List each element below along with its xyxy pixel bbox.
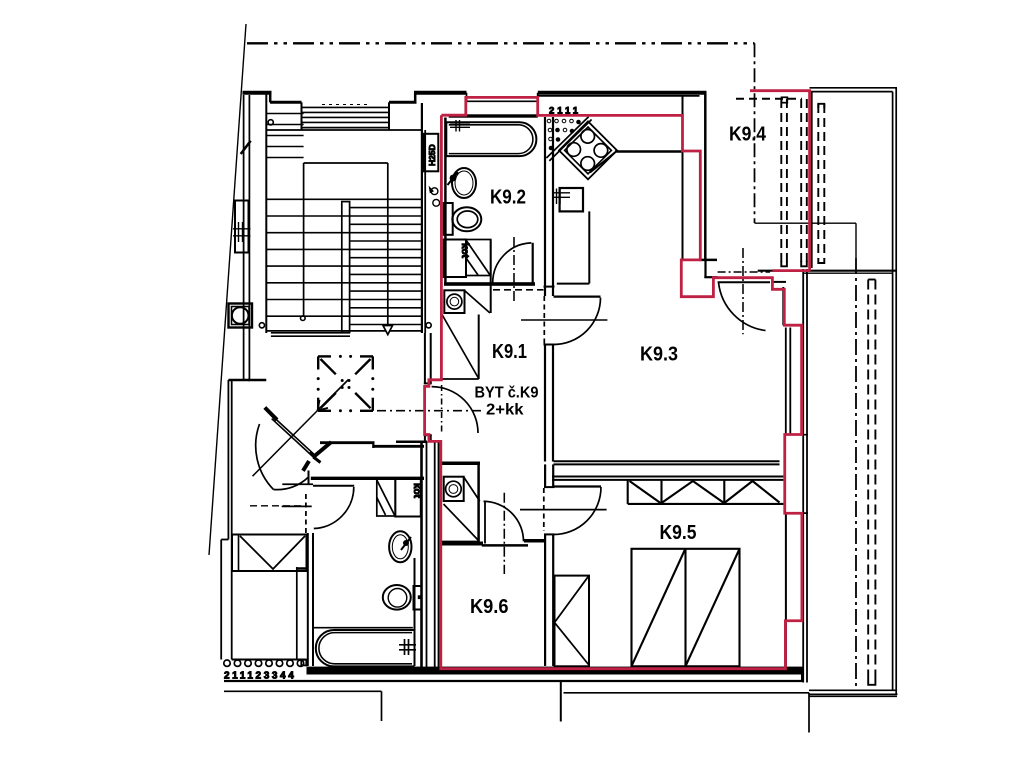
svg-text:BYT č.K9: BYT č.K9 bbox=[475, 385, 539, 402]
svg-text:K9.1: K9.1 bbox=[492, 341, 527, 363]
svg-text:K9.6: K9.6 bbox=[470, 596, 509, 618]
svg-text:kot: kot bbox=[411, 483, 422, 499]
svg-text:K9.2: K9.2 bbox=[490, 187, 526, 209]
svg-text:2+kk: 2+kk bbox=[486, 402, 524, 419]
svg-text:H25D: H25D bbox=[427, 144, 437, 166]
svg-text:kot: kot bbox=[459, 243, 470, 259]
svg-text:K9.3: K9.3 bbox=[640, 344, 678, 366]
svg-text:K9.5: K9.5 bbox=[660, 522, 697, 544]
svg-text:K9.4: K9.4 bbox=[729, 124, 767, 146]
svg-text:211123344: 211123344 bbox=[224, 671, 296, 682]
